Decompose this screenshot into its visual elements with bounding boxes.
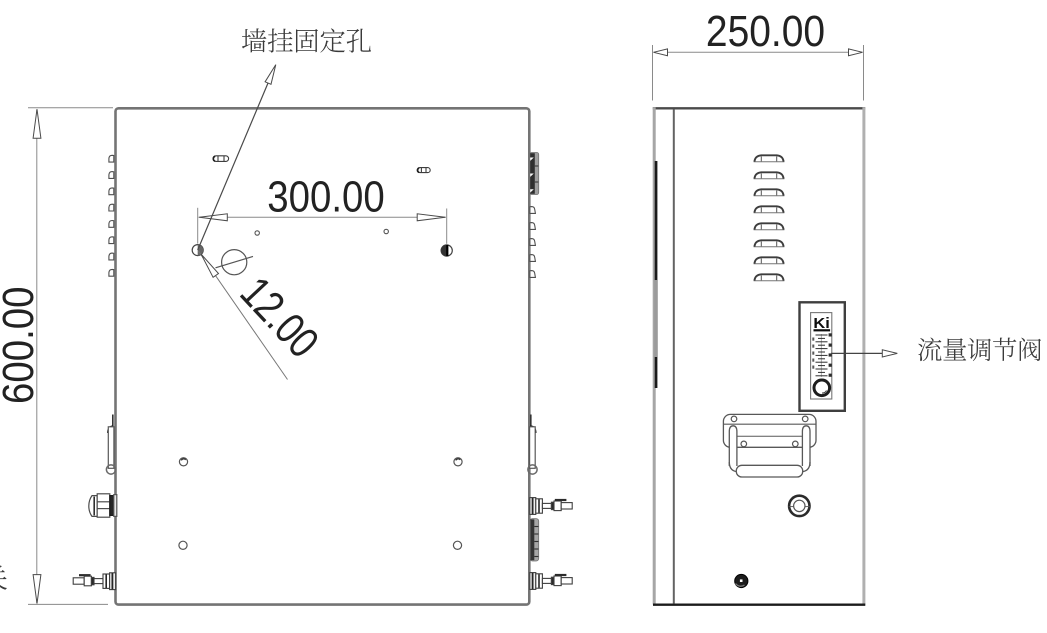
svg-text:250.00: 250.00 [706,7,825,56]
svg-text:300.00: 300.00 [267,172,384,221]
svg-text:600.00: 600.00 [0,287,43,405]
